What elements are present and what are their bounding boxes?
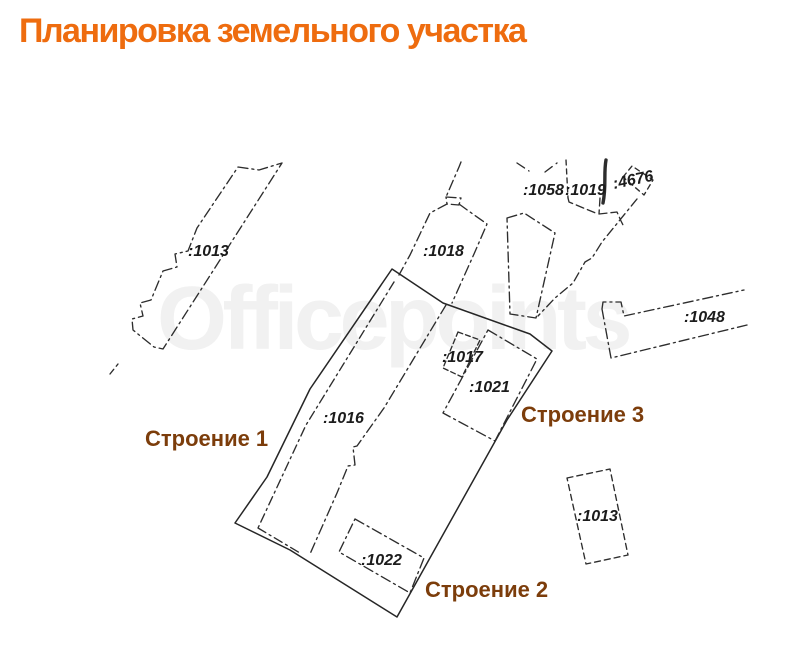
svg-text::1021: :1021 xyxy=(469,379,510,396)
svg-text::1013: :1013 xyxy=(577,508,618,525)
svg-text:Строение 3: Строение 3 xyxy=(521,402,644,427)
svg-text:Строение 1: Строение 1 xyxy=(145,426,268,451)
svg-text::1022: :1022 xyxy=(361,552,402,569)
svg-text::1017: :1017 xyxy=(442,349,484,366)
svg-text:Строение 2: Строение 2 xyxy=(425,577,548,602)
svg-text::1048: :1048 xyxy=(684,309,725,326)
svg-text::1019: :1019 xyxy=(565,182,606,199)
svg-text::1013: :1013 xyxy=(188,243,229,260)
svg-text::1058: :1058 xyxy=(523,182,564,199)
svg-text::1018: :1018 xyxy=(423,243,464,260)
svg-text::4676: :4676 xyxy=(611,168,655,193)
svg-text::1016: :1016 xyxy=(323,410,364,427)
